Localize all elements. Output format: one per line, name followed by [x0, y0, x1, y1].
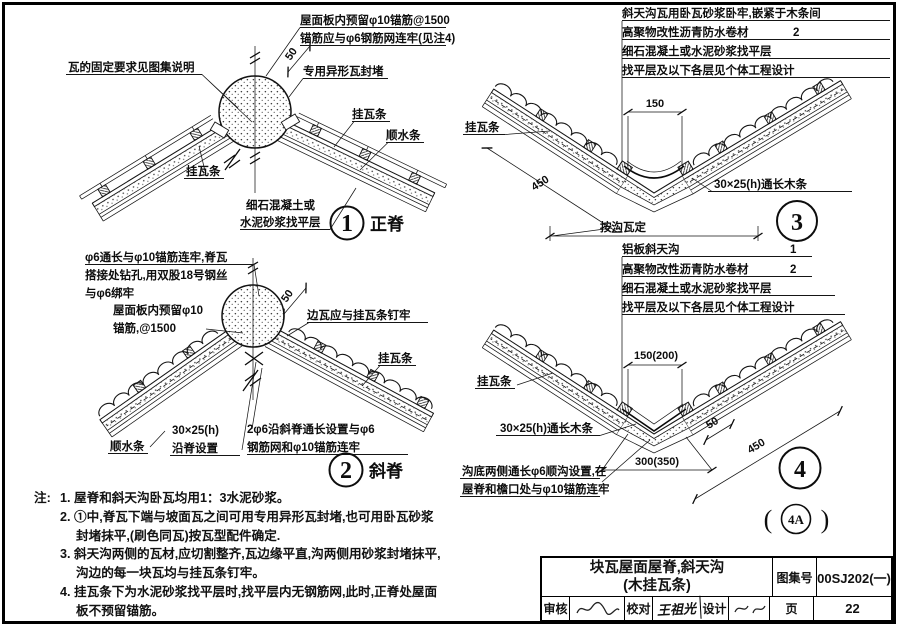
proof-signature: 王祖光 [652, 596, 701, 621]
d4-callout-2: 高聚物改性沥青防水卷材 [622, 262, 749, 276]
proof-label: 校对 [625, 597, 653, 620]
note-4-line1: 4. 挂瓦条下为水泥砂浆找平层时,找平层内无钢筋网,此时,正脊处屋面 [60, 583, 470, 602]
d2-rebar-note-1: 2φ6沿斜脊通长设置与φ6 [247, 422, 375, 436]
detail2-hip-ridge: 50 φ6通长与φ10锚筋连牢,脊瓦 搭接处钻孔,用双股18号钢丝 与φ6绑牢 … [85, 250, 438, 487]
d4-callout-3: 细石混凝土或水泥砂浆找平层 [622, 281, 772, 295]
d3-dim150-text: 150 [646, 98, 664, 110]
note-2-line2: 封堵抹平,(刷色同瓦)按瓦型配件确定. [60, 527, 470, 546]
d4-right-slope [677, 313, 852, 435]
note-3-line1: 3. 斜天沟两侧的瓦材,应切割整齐,瓦边缘平直,沟两侧用砂浆封堵抹平, [60, 545, 470, 564]
d2-anchor-note-1: 屋面板内预留φ10 [113, 303, 203, 317]
d2-wire-note-2: 搭接处钻孔,用双股18号钢丝 [85, 268, 228, 282]
d3-dim-150: 150 [624, 98, 687, 166]
atlas-no-value: 00SJ202(一) [817, 558, 891, 596]
d2-wire-note-1: φ6通长与φ10锚筋连牢,脊瓦 [85, 250, 228, 264]
note-3-line2: 沟边的每一块瓦均与挂瓦条钉牢。 [60, 564, 470, 583]
d3-wood-strip-label: 30×25(h)通长木条 [714, 177, 807, 191]
d2-ridge-wood-label-1: 30×25(h) [172, 425, 219, 437]
note-1: 1. 屋脊和斜天沟卧瓦均用1：3水泥砂浆。 [60, 489, 470, 508]
page-number: 22 [814, 597, 891, 620]
d2-batten-label: 挂瓦条 [378, 351, 413, 365]
d2-left-slope [94, 320, 243, 437]
d1-counterbatten-label: 顺水条 [386, 128, 421, 142]
design-signature [729, 597, 770, 620]
d4-callout-4: 找平层及以下各层见个体工程设计 [622, 300, 795, 314]
design-label: 设计 [701, 597, 729, 620]
d3-valley-gutter [617, 161, 693, 212]
d3-callout-1: 斜天沟瓦用卧瓦砂浆卧牢,嵌紧于木条间 [621, 6, 821, 20]
title-block: 块瓦屋面屋脊,斜天沟 (木挂瓦条) 图集号 00SJ202(一) 审核 校对 王… [540, 556, 893, 622]
d2-ridge-wood-label-2: 沿脊设置 [172, 441, 218, 455]
d4-wood-strip-label: 30×25(h)通长木条 [500, 421, 593, 435]
atlas-sheet: 50 屋面板内预留φ10锚筋@1500 锚筋应与φ6钢筋网连牢(见注4) 瓦的固… [0, 0, 900, 627]
d2-wire-note-3: 与φ6绑牢 [85, 286, 135, 300]
d4-dim-150: 150(200) [624, 350, 687, 407]
page-label: 页 [770, 597, 814, 620]
d4-alt-paren-right: ) [821, 505, 830, 534]
d1-screed-label-2: 水泥砂浆找平层 [240, 215, 321, 229]
d4-batten-label: 挂瓦条 [477, 374, 512, 388]
d2-detail-number: 2 [340, 458, 352, 484]
audit-signature-scribble [573, 600, 621, 618]
d4-dim150-text: 150(200) [634, 350, 678, 362]
d1-special-tile-label: 专用异形瓦封堵 [303, 64, 384, 78]
d4-alt-detail-circle: ( 4A ) [764, 505, 830, 535]
drawing-title-line2: (木挂瓦条) [623, 577, 691, 595]
d1-batten-label-right: 挂瓦条 [352, 107, 387, 121]
d1-detail-title: 正脊 [370, 214, 405, 234]
d3-left-slope [482, 81, 633, 194]
d3-right-slope [677, 72, 852, 194]
d1-anchor-note-2: 锚筋应与φ6钢筋网连牢(见注4) [300, 31, 455, 45]
d2-anchor-note-2: 锚筋,@1500 [113, 321, 176, 335]
d4-alt-number: 4A [788, 512, 805, 527]
d1-fix-note: 瓦的固定要求见图集说明 [68, 60, 195, 74]
d2-edge-tile-note: 边瓦应与挂瓦条钉牢 [306, 308, 411, 322]
d2-counterbatten-label: 顺水条 [110, 439, 145, 453]
d4-rebar-note-2: 屋脊和檐口处与φ10锚筋连牢 [462, 482, 610, 496]
d1-screed-label-1: 细石混凝土或 [246, 198, 315, 212]
d1-detail-number: 1 [341, 211, 353, 237]
d3-callout-3: 细石混凝土或水泥砂浆找平层 [622, 44, 772, 58]
d2-rebar-note-2: 钢筋网和φ10锚筋连牢 [247, 440, 361, 454]
d4-callout-1: 铝板斜天沟 [622, 242, 680, 256]
d3-callout-2: 高聚物改性沥青防水卷材 [622, 25, 749, 39]
design-signature-scribble [730, 600, 768, 618]
d4-dim450-text: 450 [745, 437, 767, 457]
d3-callout-2-ref: 2 [793, 27, 799, 39]
d3-detail-number: 3 [791, 210, 803, 236]
detail3-valley: 150 450 按沟瓦定 斜天沟瓦用卧瓦砂浆卧牢,嵌紧于木条间 高聚物改性沥青防… [463, 6, 890, 241]
note-4-line2: 板不预留锚筋。 [60, 602, 470, 621]
d2-detail-title: 斜脊 [368, 461, 404, 481]
d1-anchor-note-1: 屋面板内预留φ10锚筋@1500 [300, 13, 450, 27]
d2-dim50-text: 50 [279, 288, 296, 305]
d4-detail-number: 4 [794, 457, 806, 483]
d2-right-slope [265, 319, 438, 432]
detail1-main-ridge: 50 屋面板内预留φ10锚筋@1500 锚筋应与φ6钢筋网连牢(见注4) 瓦的固… [66, 13, 455, 240]
d3-dim-gutter: 按沟瓦定 [546, 220, 763, 241]
notes-prefix: 注: [34, 489, 60, 621]
d4-alt-paren-left: ( [764, 505, 773, 534]
d3-batten-label: 挂瓦条 [465, 120, 500, 134]
d3-dim-gutter-text: 按沟瓦定 [600, 220, 646, 234]
notes-block: 注: 1. 屋脊和斜天沟卧瓦均用1：3水泥砂浆。 2. ①中,脊瓦下端与坡面瓦之… [34, 489, 470, 621]
atlas-no-label: 图集号 [773, 558, 817, 596]
d4-rebar-note-1: 沟底两侧通长φ6顺沟设置,在 [462, 464, 607, 478]
d3-callout-4: 找平层及以下各层见个体工程设计 [622, 63, 795, 77]
audit-label: 审核 [542, 597, 570, 620]
note-2-line1: 2. ①中,脊瓦下端与坡面瓦之间可用专用异形瓦封堵,也可用卧瓦砂浆 [60, 508, 470, 527]
audit-signature [570, 597, 625, 620]
d4-callout-2-ref: 2 [790, 264, 796, 276]
drawing-title: 块瓦屋面屋脊,斜天沟 (木挂瓦条) [542, 558, 773, 596]
detail4-valley-aluminium: 150(200) 300(350) 50 450 铝 [460, 242, 851, 534]
d1-batten-label-left: 挂瓦条 [186, 164, 221, 178]
d3-dim450-text: 450 [529, 173, 551, 193]
d4-callout-1-ref: 1 [790, 244, 797, 256]
d4-dim300-text: 300(350) [635, 456, 679, 468]
drawing-title-line1: 块瓦屋面屋脊,斜天沟 [590, 559, 725, 577]
